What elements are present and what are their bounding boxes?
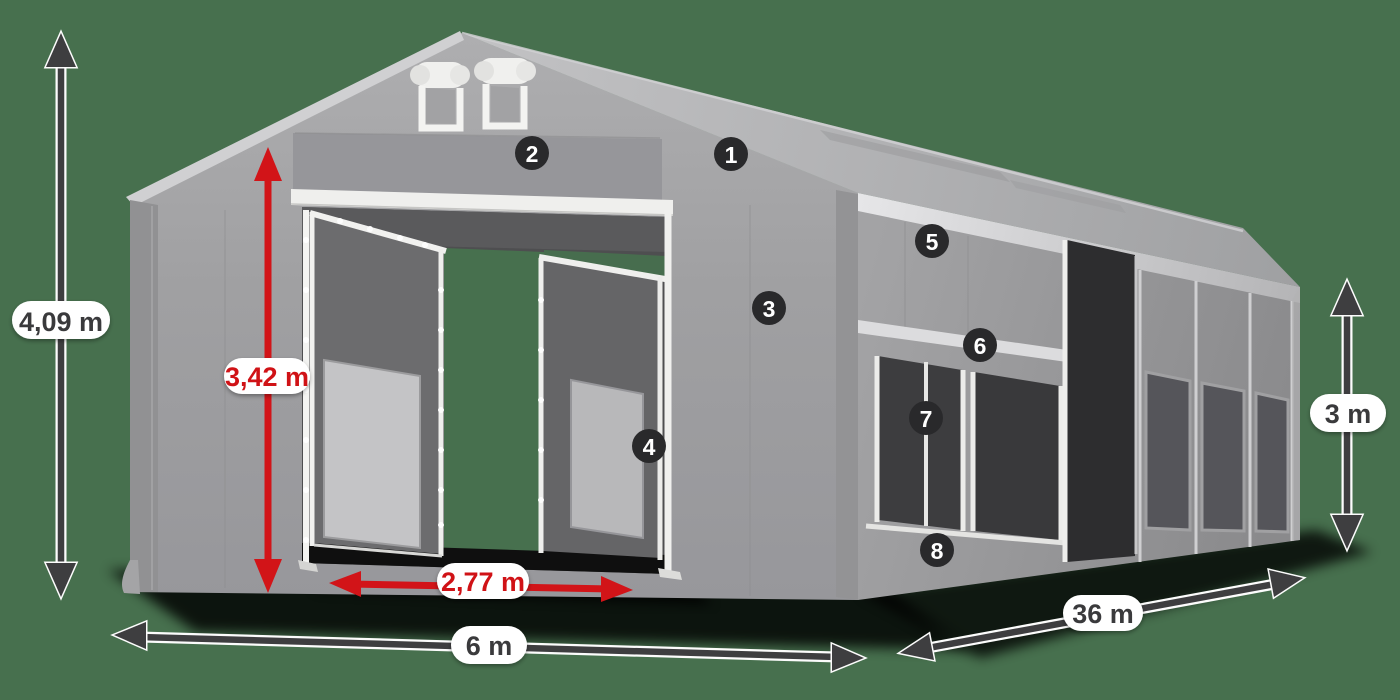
badge-number: 4 [643,434,656,460]
vent-right-mesh [491,86,519,122]
badge-number: 3 [763,296,776,322]
side-window-far-1 [1146,372,1190,530]
label-text: 4,09 m [19,307,103,337]
callout-badge-5: 5 [915,224,949,258]
front-left-corner-post [130,200,158,592]
side-window-far-3 [1256,393,1288,532]
gable-vent-right [474,58,536,126]
tent-diagram: 1 2 3 4 5 6 7 8 [0,0,1400,700]
side-window-far-2 [1202,383,1244,531]
dimension-label-length: 36 m [1063,595,1143,631]
sliding-door-opening [1067,240,1135,562]
label-text: 6 m [466,631,513,661]
badge-number: 8 [931,538,944,564]
badge-number: 6 [974,333,987,359]
far-corner [1292,287,1300,541]
vent-left-roll-cap-b [450,65,470,85]
badge-number: 7 [920,406,933,432]
front-right-corner-post [836,190,858,600]
dimension-label-width: 6 m [451,626,527,664]
callout-badge-7: 7 [909,401,943,435]
dimension-label-side-height: 3 m [1310,394,1386,432]
tent-diagram-stage: 1 2 3 4 5 6 7 8 [0,0,1400,700]
doorway-see-through [444,248,544,560]
dimension-label-entrance-height: 3,42 m [224,358,310,394]
callout-badge-1: 1 [714,137,748,171]
gable-vent-left [410,62,470,128]
door-left [310,212,446,556]
side-window-opening-1 [878,356,962,530]
vent-left-roll-cap-a [410,65,430,85]
vent-left-mesh [426,88,455,124]
vent-right-roll-cap-b [516,61,536,81]
door-right-window [571,380,643,538]
callout-badge-2: 2 [515,136,549,170]
badge-number: 5 [926,229,939,255]
badge-number: 2 [526,141,539,167]
label-text: 3 m [1325,399,1372,429]
label-text: 3,42 m [225,362,309,392]
badge-number: 1 [725,142,738,168]
side-window-opening-2 [974,372,1060,540]
vent-right-roll-cap-a [474,61,494,81]
gable-band [293,133,662,200]
callout-badge-8: 8 [920,533,954,567]
callout-badge-4: 4 [632,429,666,463]
door-right [538,257,665,560]
dimension-label-total-height: 4,09 m [12,301,110,339]
callout-badge-3: 3 [752,291,786,325]
door-left-window [324,360,420,548]
callout-badge-6: 6 [963,328,997,362]
label-text: 36 m [1072,599,1134,629]
dimension-label-entrance-width: 2,77 m [437,563,529,599]
label-text: 2,77 m [441,567,525,597]
